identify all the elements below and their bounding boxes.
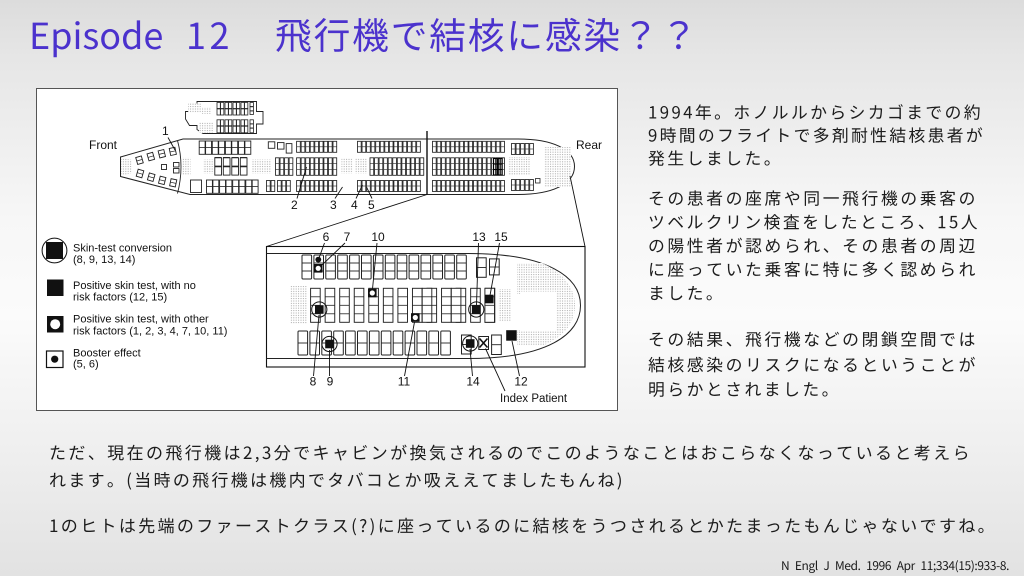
- svg-text:5: 5: [368, 198, 375, 212]
- svg-text:14: 14: [466, 375, 480, 389]
- svg-text:3: 3: [330, 198, 337, 212]
- svg-text:8: 8: [310, 375, 317, 389]
- svg-text:11: 11: [398, 375, 411, 389]
- svg-text:Rear: Rear: [576, 138, 602, 152]
- svg-text:(8, 9, 13, 14): (8, 9, 13, 14): [73, 254, 135, 266]
- svg-text:2: 2: [291, 198, 298, 212]
- svg-text:9: 9: [327, 375, 334, 389]
- svg-text:Skin-test conversion: Skin-test conversion: [73, 243, 172, 255]
- svg-text:Positive skin test, with no: Positive skin test, with no: [73, 280, 196, 292]
- svg-text:risk factors (12, 15): risk factors (12, 15): [73, 292, 167, 304]
- svg-text:risk factors (1, 2, 3, 4, 7, 1: risk factors (1, 2, 3, 4, 7, 10, 11): [73, 326, 227, 338]
- svg-text:Front: Front: [89, 138, 118, 152]
- svg-text:Booster effect: Booster effect: [73, 348, 141, 360]
- svg-text:12: 12: [514, 375, 528, 389]
- svg-text:7: 7: [344, 230, 351, 244]
- svg-text:1: 1: [162, 124, 169, 138]
- svg-text:Index Patient: Index Patient: [500, 393, 568, 405]
- svg-text:4: 4: [351, 198, 358, 212]
- svg-text:(5, 6): (5, 6): [73, 359, 99, 371]
- svg-text:6: 6: [323, 230, 330, 244]
- svg-text:13: 13: [472, 230, 486, 244]
- svg-text:10: 10: [371, 230, 385, 244]
- svg-text:Positive skin test, with other: Positive skin test, with other: [73, 314, 209, 326]
- svg-text:15: 15: [494, 230, 508, 244]
